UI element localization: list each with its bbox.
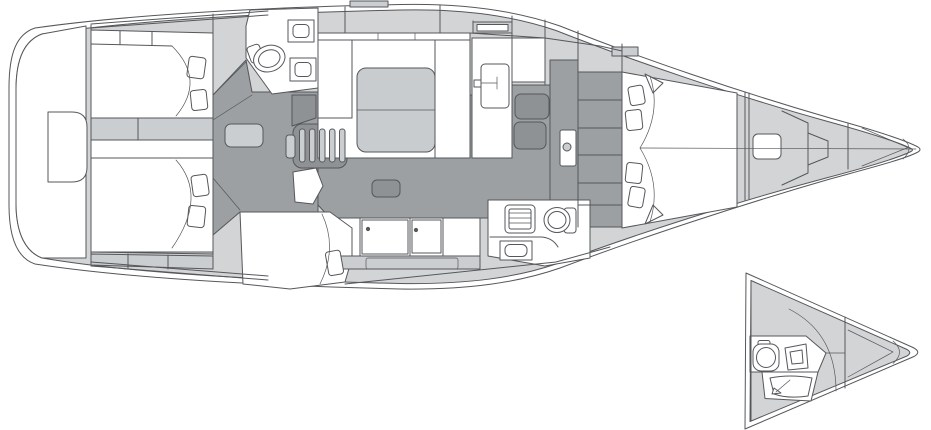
floor-pad (372, 180, 400, 197)
stair-tread-4 (330, 129, 336, 162)
aft-cabin-starboard-berth (91, 158, 213, 252)
stair-tread-2 (310, 129, 316, 162)
deck-notch (350, 1, 388, 7)
corridor-white-band (91, 140, 213, 158)
stern-platform (16, 26, 87, 258)
entry-side-shelf (225, 124, 263, 147)
stair-tread-3 (320, 129, 326, 162)
sink-day-head-1 (288, 20, 314, 42)
bow-inset (745, 273, 918, 429)
deck-plan-svg (0, 0, 931, 430)
toilet-aft-head (544, 208, 576, 234)
nav-counter-top (512, 38, 545, 82)
sail-locker-hatch (753, 134, 781, 159)
galley-unit-2 (412, 220, 441, 253)
liferaft-recess (48, 112, 87, 182)
stair-tread-1 (300, 129, 306, 162)
sink-day-head-2 (290, 58, 316, 81)
stairs-handrail-tab (286, 135, 295, 158)
shower-tray-inset (770, 376, 812, 397)
toilet-inset (753, 341, 779, 372)
galley-unit-1 (362, 220, 408, 254)
aft-head-sink (500, 241, 532, 260)
bow-deck-step-1 (612, 47, 638, 56)
corridor-shelf-band (91, 118, 213, 140)
stool-seat-2 (514, 122, 546, 149)
aft-head-slat-sink (505, 205, 535, 233)
sink-inset (785, 344, 808, 370)
deck-window-glass (477, 25, 508, 32)
stool-seat-1 (515, 94, 549, 119)
plan-root (9, 1, 920, 429)
door-knob (563, 143, 571, 151)
stair-tread-5 (340, 129, 346, 162)
yacht-deck-plan (0, 0, 931, 430)
